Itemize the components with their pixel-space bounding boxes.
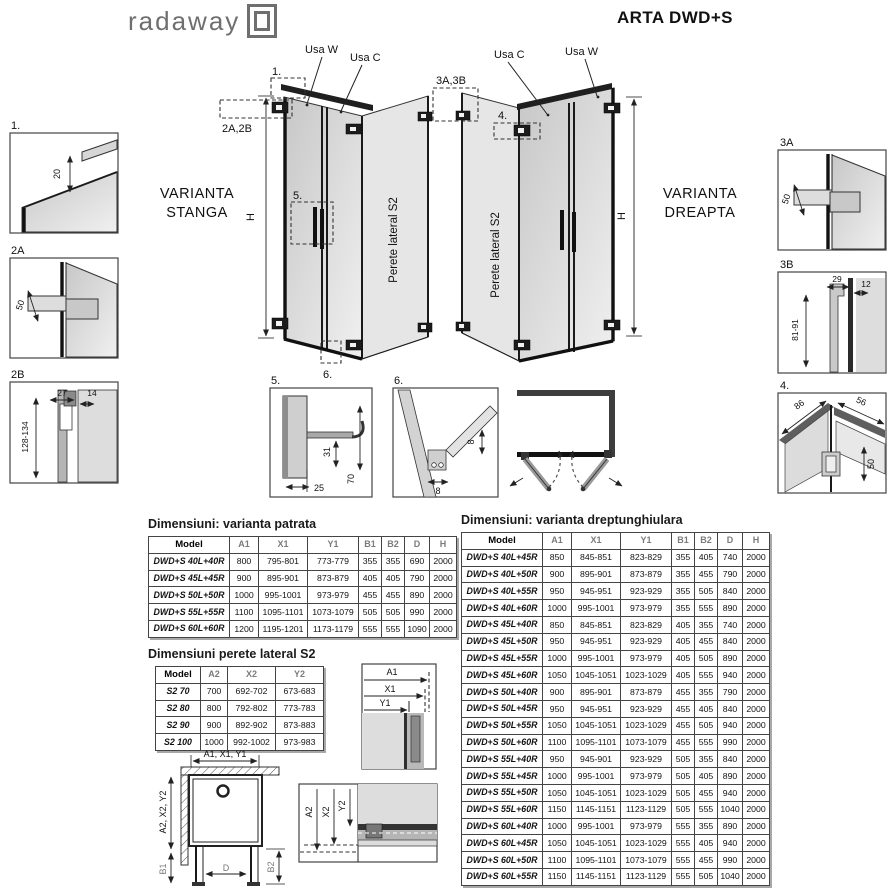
section-h-dim-x1: X1 [384, 684, 395, 694]
value-cell: 945-951 [572, 583, 621, 600]
table-row: DWD+S 60L+60R12001195-12011173-117955555… [149, 620, 457, 637]
value-cell: 2000 [430, 604, 457, 621]
table-row: DWD+S 50L+40R900895-901873-8794553557902… [462, 684, 770, 701]
value-cell: 505 [695, 650, 718, 667]
detail-3a-label: 3A [780, 137, 794, 149]
value-cell: 973-979 [621, 650, 672, 667]
value-cell: 900 [543, 566, 572, 583]
left-usa-w-label: Usa W [305, 44, 339, 56]
value-cell: 790 [718, 684, 743, 701]
value-cell: 2000 [743, 566, 770, 583]
value-cell: 790 [718, 566, 743, 583]
table-row: DWD+S 45L+60R10501045-10511023-102940555… [462, 667, 770, 684]
value-cell: 950 [543, 583, 572, 600]
value-cell: 505 [672, 751, 695, 768]
variant-left-line1: VARIANTA [160, 186, 234, 202]
value-cell: 2000 [743, 650, 770, 667]
detail-5-dim-70: 70 [346, 474, 356, 484]
value-cell: 2000 [743, 549, 770, 566]
value-cell: 990 [718, 734, 743, 751]
value-cell: 790 [405, 570, 430, 587]
value-cell: 950 [543, 700, 572, 717]
detail-5: 5. 25 31 70 [270, 375, 372, 497]
value-cell: 1023-1029 [621, 835, 672, 852]
value-cell: 405 [672, 616, 695, 633]
plan-dim-b1: B1 [158, 863, 168, 874]
value-cell: 950 [543, 633, 572, 650]
value-cell: 995-1001 [572, 818, 621, 835]
model-cell: DWD+S 50L+40R [462, 684, 543, 701]
value-cell: 1173-1179 [308, 620, 359, 637]
value-cell: 405 [695, 700, 718, 717]
value-cell: 1000 [543, 818, 572, 835]
value-cell: 823-829 [621, 549, 672, 566]
right-usa-c-label: Usa C [494, 49, 525, 61]
value-cell: 1095-1101 [259, 604, 308, 621]
detail-4-dim-50: 50 [866, 459, 876, 469]
value-cell: 950 [543, 751, 572, 768]
value-cell: 873-879 [308, 570, 359, 587]
logo-square-icon [247, 4, 277, 38]
detail-6-dim-8a: 8 [435, 486, 440, 496]
value-cell: 505 [695, 583, 718, 600]
table-row: DWD+S 60L+55R11501145-11511123-112955550… [462, 868, 770, 885]
value-cell: 690 [405, 553, 430, 570]
value-cell: 823-829 [621, 616, 672, 633]
model-cell: DWD+S 40L+55R [462, 583, 543, 600]
detail-4-label: 4. [780, 380, 789, 392]
table-row: DWD+S 45L+50R950945-951923-9294054558402… [462, 633, 770, 650]
table-row: DWD+S 50L+50R1000995-1001973-97945545589… [149, 587, 457, 604]
value-cell: 1090 [405, 620, 430, 637]
model-cell: DWD+S 50L+45R [462, 700, 543, 717]
value-cell: 2000 [743, 818, 770, 835]
value-cell: 2000 [743, 751, 770, 768]
value-cell: 2000 [743, 684, 770, 701]
value-cell: 355 [359, 553, 382, 570]
column-header: X1 [572, 533, 621, 550]
left-callout-1: 1. [272, 66, 281, 78]
variant-right-line2: DREAPTA [665, 205, 736, 221]
value-cell: 890 [718, 600, 743, 617]
value-cell: 455 [695, 633, 718, 650]
value-cell: 2000 [743, 852, 770, 869]
radaway-logo: radaway [128, 4, 277, 38]
section-v-dim-y2: Y2 [337, 800, 347, 811]
column-header: Model [462, 533, 543, 550]
detail-4: 4. 86 56 50 [778, 380, 886, 493]
value-cell: 840 [718, 633, 743, 650]
value-cell: 1100 [543, 852, 572, 869]
model-cell: DWD+S 50L+60R [462, 734, 543, 751]
value-cell: 940 [718, 717, 743, 734]
value-cell: 1100 [230, 604, 259, 621]
table-row: DWD+S 60L+40R1000995-1001973-97955535589… [462, 818, 770, 835]
column-header: Model [149, 537, 230, 554]
detail-2b-dim-14: 14 [87, 388, 97, 398]
model-cell: DWD+S 40L+40R [149, 553, 230, 570]
column-header: H [743, 533, 770, 550]
technical-drawing-bottom: A1, X1, Y1 A2, X2, Y2 B1 D B2 A1 X1 [0, 650, 460, 890]
value-cell: 2000 [743, 835, 770, 852]
value-cell: 873-879 [621, 684, 672, 701]
header-row: ModelA1X1Y1B1B2DH [149, 537, 457, 554]
value-cell: 1150 [543, 801, 572, 818]
plan-dim-b2: B2 [266, 861, 276, 872]
detail-3b: 3B 29 12 81-91 [778, 259, 886, 373]
table-row: DWD+S 60L+50R11001095-11011073-107955545… [462, 852, 770, 869]
value-cell: 923-929 [621, 583, 672, 600]
left-side-panel-label: Perete lateral S2 [388, 197, 400, 283]
value-cell: 405 [695, 835, 718, 852]
value-cell: 2000 [743, 600, 770, 617]
value-cell: 1000 [543, 600, 572, 617]
table-row: DWD+S 55L+55R11001095-11011073-107950550… [149, 604, 457, 621]
detail-5-label: 5. [271, 375, 280, 387]
value-cell: 1095-1101 [572, 852, 621, 869]
right-callout-4: 4. [498, 110, 507, 122]
value-cell: 890 [718, 650, 743, 667]
model-cell: DWD+S 45L+55R [462, 650, 543, 667]
left-callout-2ab: 2A,2B [222, 123, 252, 135]
detail-6: 6. 8 8 [393, 375, 498, 497]
value-cell: 355 [695, 684, 718, 701]
value-cell: 1000 [230, 587, 259, 604]
model-cell: DWD+S 45L+40R [462, 616, 543, 633]
value-cell: 405 [382, 570, 405, 587]
section-v-dim-a2: A2 [304, 806, 314, 817]
door-swing-top-view [510, 390, 622, 491]
value-cell: 405 [695, 768, 718, 785]
column-header: D [405, 537, 430, 554]
table-row: DWD+S 55L+45R1000995-1001973-97950540589… [462, 768, 770, 785]
value-cell: 2000 [430, 570, 457, 587]
table-row: DWD+S 45L+40R850845-851823-8294053557402… [462, 616, 770, 633]
model-cell: DWD+S 60L+50R [462, 852, 543, 869]
table-row: DWD+S 55L+40R950945-901923-9295053558402… [462, 751, 770, 768]
value-cell: 2000 [743, 717, 770, 734]
section-detail-vertical: A2 X2 Y2 [299, 784, 437, 862]
value-cell: 555 [359, 620, 382, 637]
value-cell: 873-879 [621, 566, 672, 583]
model-cell: DWD+S 55L+55R [149, 604, 230, 621]
value-cell: 455 [695, 852, 718, 869]
left-enclosure-drawing: VARIANTA STANGA Perete lateral S2 H Us [160, 44, 432, 381]
value-cell: 1200 [230, 620, 259, 637]
table-row: DWD+S 60L+45R10501045-10511023-102955540… [462, 835, 770, 852]
value-cell: 455 [672, 684, 695, 701]
variant-right-line1: VARIANTA [663, 186, 737, 202]
table-block-dreptunghiulara: Dimensiuni: varianta dreptunghiulara Mod… [461, 513, 770, 886]
value-cell: 1073-1079 [621, 852, 672, 869]
value-cell: 995-1001 [572, 600, 621, 617]
model-cell: DWD+S 55L+45R [462, 768, 543, 785]
value-cell: 505 [695, 717, 718, 734]
value-cell: 455 [695, 566, 718, 583]
section-detail-horizontal: A1 X1 Y1 [362, 664, 436, 769]
value-cell: 1045-1051 [572, 835, 621, 852]
value-cell: 355 [695, 818, 718, 835]
model-cell: DWD+S 60L+40R [462, 818, 543, 835]
value-cell: 405 [672, 667, 695, 684]
detail-6-label: 6. [394, 375, 403, 387]
table-row: DWD+S 40L+60R1000995-1001973-97935555589… [462, 600, 770, 617]
model-cell: DWD+S 55L+60R [462, 801, 543, 818]
value-cell: 555 [695, 734, 718, 751]
column-header: H [430, 537, 457, 554]
value-cell: 1095-1101 [572, 734, 621, 751]
value-cell: 945-901 [572, 751, 621, 768]
value-cell: 840 [718, 700, 743, 717]
section-h-dim-a1: A1 [386, 667, 397, 677]
page-title: ARTA DWD+S [617, 8, 733, 28]
detail-3b-label: 3B [780, 259, 793, 271]
value-cell: 840 [718, 583, 743, 600]
model-cell: DWD+S 40L+45R [462, 549, 543, 566]
value-cell: 1145-1151 [572, 801, 621, 818]
detail-3b-dim-29: 29 [832, 274, 842, 284]
table-row: DWD+S 40L+45R850845-851823-8293554057402… [462, 549, 770, 566]
value-cell: 940 [718, 835, 743, 852]
value-cell: 2000 [430, 553, 457, 570]
section-h-dim-y1: Y1 [379, 698, 390, 708]
value-cell: 1100 [543, 734, 572, 751]
column-header: Y1 [621, 533, 672, 550]
drain-icon [218, 786, 229, 797]
detail-2b-label: 2B [11, 369, 24, 381]
column-header: A1 [230, 537, 259, 554]
table-row: DWD+S 40L+40R800795-801773-7793553556902… [149, 553, 457, 570]
model-cell: DWD+S 45L+60R [462, 667, 543, 684]
value-cell: 2000 [743, 633, 770, 650]
plan-view-drawing: A1, X1, Y1 A2, X2, Y2 B1 D B2 [158, 749, 285, 886]
detail-2b-dim-range: 128-134 [20, 421, 30, 452]
table-row: DWD+S 45L+45R900895-901873-8794054057902… [149, 570, 457, 587]
value-cell: 2000 [743, 768, 770, 785]
value-cell: 850 [543, 616, 572, 633]
technical-drawing-top: VARIANTA STANGA Perete lateral S2 H Us [0, 40, 890, 512]
value-cell: 405 [359, 570, 382, 587]
value-cell: 355 [382, 553, 405, 570]
column-header: B2 [695, 533, 718, 550]
left-callout-6: 6. [323, 369, 332, 381]
value-cell: 990 [405, 604, 430, 621]
value-cell: 1145-1151 [572, 868, 621, 885]
value-cell: 2000 [743, 616, 770, 633]
variant-left-line2: STANGA [166, 205, 228, 221]
plan-dim-left: A2, X2, Y2 [158, 791, 168, 834]
right-height-label: H [616, 212, 628, 220]
value-cell: 890 [718, 768, 743, 785]
value-cell: 945-951 [572, 633, 621, 650]
column-header: A1 [543, 533, 572, 550]
column-header: Y1 [308, 537, 359, 554]
detail-3a: 3A 50 [778, 137, 886, 250]
model-cell: DWD+S 60L+55R [462, 868, 543, 885]
column-header: D [718, 533, 743, 550]
value-cell: 2000 [743, 801, 770, 818]
value-cell: 505 [672, 801, 695, 818]
value-cell: 1045-1051 [572, 717, 621, 734]
value-cell: 505 [382, 604, 405, 621]
value-cell: 555 [695, 667, 718, 684]
section-v-dim-x2: X2 [321, 806, 331, 817]
value-cell: 995-1001 [572, 768, 621, 785]
right-front-doors-glass [519, 88, 614, 361]
value-cell: 555 [695, 600, 718, 617]
value-cell: 1040 [718, 801, 743, 818]
model-cell: DWD+S 45L+50R [462, 633, 543, 650]
value-cell: 405 [695, 549, 718, 566]
left-callout-5: 5. [293, 190, 302, 202]
value-cell: 895-901 [572, 566, 621, 583]
table-row: DWD+S 45L+55R1000995-1001973-97940550589… [462, 650, 770, 667]
column-header: B1 [359, 537, 382, 554]
value-cell: 890 [405, 587, 430, 604]
right-enclosure-drawing: VARIANTA DREAPTA Perete lateral S2 H U [433, 46, 737, 361]
detail-6-dim-8b: 8 [466, 439, 476, 444]
plan-dim-top: A1, X1, Y1 [204, 749, 247, 759]
value-cell: 355 [672, 600, 695, 617]
value-cell: 505 [695, 868, 718, 885]
detail-2b: 2B 27 14 128-134 [10, 369, 118, 483]
value-cell: 995-1001 [259, 587, 308, 604]
value-cell: 1000 [543, 650, 572, 667]
value-cell: 1023-1029 [621, 784, 672, 801]
value-cell: 505 [359, 604, 382, 621]
value-cell: 1123-1129 [621, 801, 672, 818]
right-side-panel-label: Perete lateral S2 [490, 212, 502, 298]
logo-text: radaway [128, 6, 240, 36]
detail-1-label: 1. [11, 120, 20, 132]
value-cell: 895-901 [259, 570, 308, 587]
header-row: ModelA1X1Y1B1B2DH [462, 533, 770, 550]
value-cell: 455 [695, 784, 718, 801]
value-cell: 1023-1029 [621, 717, 672, 734]
table-row: DWD+S 40L+50R900895-901873-8793554557902… [462, 566, 770, 583]
value-cell: 455 [672, 734, 695, 751]
value-cell: 973-979 [308, 587, 359, 604]
value-cell: 555 [672, 852, 695, 869]
table-row: DWD+S 50L+60R11001095-11011073-107945555… [462, 734, 770, 751]
value-cell: 945-951 [572, 700, 621, 717]
value-cell: 1150 [543, 868, 572, 885]
value-cell: 923-929 [621, 700, 672, 717]
value-cell: 355 [672, 566, 695, 583]
detail-3b-dim-12: 12 [861, 279, 871, 289]
value-cell: 1045-1051 [572, 667, 621, 684]
value-cell: 2000 [743, 667, 770, 684]
value-cell: 405 [672, 633, 695, 650]
value-cell: 355 [672, 583, 695, 600]
detail-2b-dim-27: 27 [57, 388, 67, 398]
value-cell: 995-1001 [572, 650, 621, 667]
detail-5-dim-25: 25 [314, 483, 324, 493]
value-cell: 800 [230, 553, 259, 570]
value-cell: 850 [543, 549, 572, 566]
right-usa-w-label: Usa W [565, 46, 599, 58]
model-cell: DWD+S 45L+45R [149, 570, 230, 587]
detail-5-dim-31: 31 [322, 447, 332, 457]
table-row: DWD+S 55L+60R11501145-11511123-112950555… [462, 801, 770, 818]
value-cell: 973-979 [621, 818, 672, 835]
value-cell: 1050 [543, 717, 572, 734]
column-header: B2 [382, 537, 405, 554]
value-cell: 940 [718, 784, 743, 801]
detail-2a: 2A 50 [10, 245, 118, 358]
table-row: DWD+S 40L+55R950945-951923-9293555058402… [462, 583, 770, 600]
value-cell: 890 [718, 818, 743, 835]
table-row: DWD+S 55L+50R10501045-10511023-102950545… [462, 784, 770, 801]
value-cell: 355 [695, 751, 718, 768]
value-cell: 2000 [430, 620, 457, 637]
detail-1: 1. 20 [10, 120, 118, 233]
value-cell: 845-851 [572, 549, 621, 566]
table-title-dreptunghiulara: Dimensiuni: varianta dreptunghiulara [461, 513, 770, 527]
value-cell: 1050 [543, 784, 572, 801]
value-cell: 1123-1129 [621, 868, 672, 885]
model-cell: DWD+S 60L+45R [462, 835, 543, 852]
value-cell: 923-929 [621, 751, 672, 768]
value-cell: 895-901 [572, 684, 621, 701]
value-cell: 990 [718, 852, 743, 869]
value-cell: 2000 [743, 700, 770, 717]
value-cell: 2000 [743, 784, 770, 801]
left-usa-c-label: Usa C [350, 52, 381, 64]
model-cell: DWD+S 50L+50R [149, 587, 230, 604]
value-cell: 505 [672, 784, 695, 801]
value-cell: 1050 [543, 835, 572, 852]
value-cell: 973-979 [621, 768, 672, 785]
value-cell: 1023-1029 [621, 667, 672, 684]
model-cell: DWD+S 40L+50R [462, 566, 543, 583]
model-cell: DWD+S 55L+40R [462, 751, 543, 768]
value-cell: 973-979 [621, 600, 672, 617]
value-cell: 505 [672, 768, 695, 785]
table-title-patrata: Dimensiuni: varianta patrata [148, 517, 457, 531]
value-cell: 1040 [718, 868, 743, 885]
value-cell: 555 [382, 620, 405, 637]
value-cell: 840 [718, 751, 743, 768]
value-cell: 455 [672, 717, 695, 734]
value-cell: 740 [718, 616, 743, 633]
detail-3b-dim-range: 81-91 [790, 319, 800, 341]
table-dreptunghiulara: ModelA1X1Y1B1B2DHDWD+S 40L+45R850845-851… [461, 532, 770, 886]
value-cell: 455 [382, 587, 405, 604]
value-cell: 1045-1051 [572, 784, 621, 801]
value-cell: 355 [672, 549, 695, 566]
model-cell: DWD+S 55L+50R [462, 784, 543, 801]
value-cell: 555 [672, 835, 695, 852]
right-callout-3ab: 3A,3B [436, 75, 466, 87]
value-cell: 2000 [743, 868, 770, 885]
value-cell: 2000 [743, 734, 770, 751]
value-cell: 1050 [543, 667, 572, 684]
value-cell: 1073-1079 [308, 604, 359, 621]
table-patrata: ModelA1X1Y1B1B2DHDWD+S 40L+40R800795-801… [148, 536, 457, 638]
model-cell: DWD+S 60L+60R [149, 620, 230, 637]
plan-dim-d: D [223, 863, 230, 873]
value-cell: 900 [230, 570, 259, 587]
value-cell: 455 [672, 700, 695, 717]
value-cell: 555 [672, 868, 695, 885]
value-cell: 355 [695, 616, 718, 633]
value-cell: 773-779 [308, 553, 359, 570]
left-height-label: H [245, 213, 257, 221]
value-cell: 555 [672, 818, 695, 835]
value-cell: 555 [695, 801, 718, 818]
value-cell: 740 [718, 549, 743, 566]
